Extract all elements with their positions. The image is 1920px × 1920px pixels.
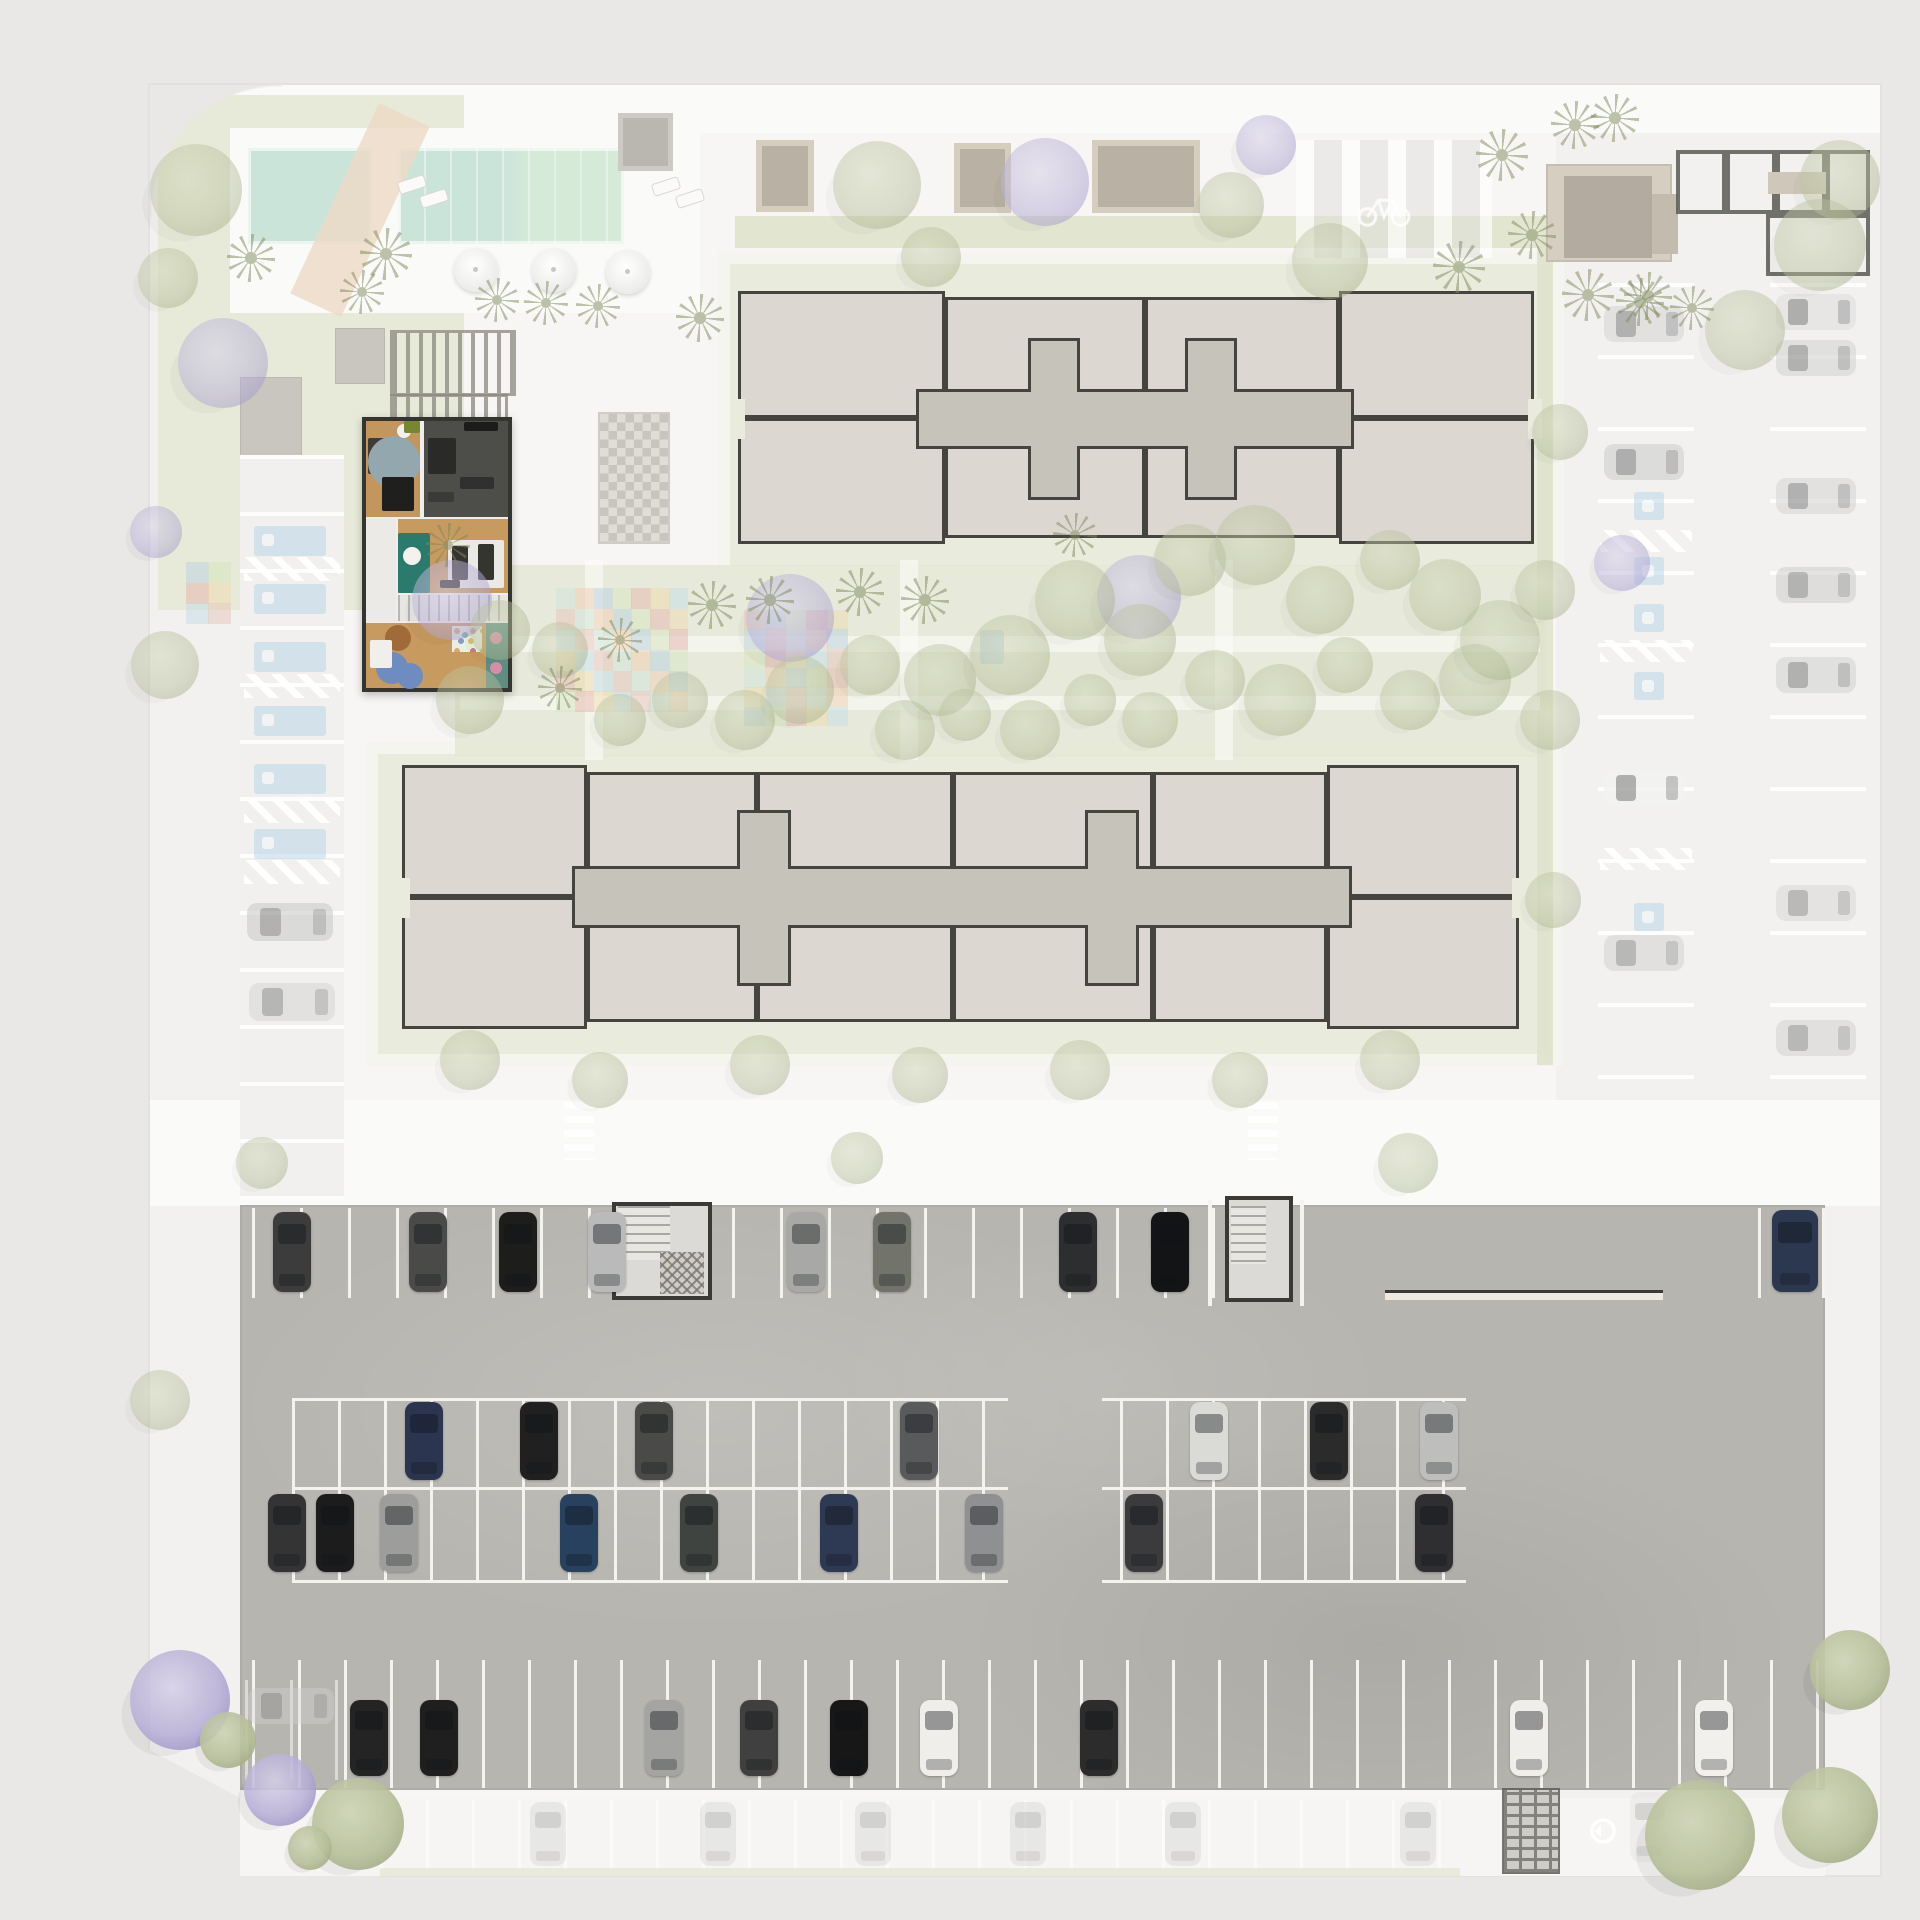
garage-stall-line [1310, 1660, 1313, 1788]
green-wall [404, 421, 420, 433]
garage-low-wall [1385, 1290, 1663, 1300]
parking-stall-line [240, 968, 344, 972]
core-side-wall [1208, 1200, 1212, 1306]
tree [244, 1754, 316, 1826]
garage-car [588, 1212, 626, 1292]
garage-stall-line [1120, 1398, 1123, 1582]
playground-tile [827, 707, 848, 727]
tree [1317, 637, 1373, 693]
garage-car [1772, 1210, 1818, 1292]
gatehouse-side [1652, 194, 1678, 254]
tree [715, 690, 775, 750]
building-1-corridor-floor [936, 392, 1334, 446]
crosswalk [564, 1102, 594, 1160]
crosswalk [1248, 1102, 1278, 1160]
faded-car [248, 1688, 334, 1724]
playground-tile [613, 671, 632, 692]
bicycle-icon [1356, 192, 1412, 228]
tree [1594, 535, 1650, 591]
garage-stall-line [924, 1208, 927, 1298]
garage-car [1125, 1494, 1163, 1572]
tree [1525, 872, 1581, 928]
parking-stall-line [1770, 427, 1866, 431]
no-parking-hatch [1600, 640, 1692, 662]
garage-row-line [292, 1487, 1008, 1490]
tree [1520, 690, 1580, 750]
tree [970, 615, 1050, 695]
tree [1515, 560, 1575, 620]
tree [236, 1137, 288, 1189]
rooftop-planter [1092, 140, 1200, 213]
parked-car [1776, 478, 1856, 514]
garage-car [380, 1494, 418, 1572]
garage-stall-line [1402, 1660, 1405, 1788]
parked-car [1604, 935, 1684, 971]
garage-stall-line [732, 1208, 735, 1298]
tree [1035, 560, 1115, 640]
palm-tree [598, 618, 642, 662]
garage-stall-line [1770, 1660, 1773, 1788]
outdoor-stall-line [518, 1800, 521, 1870]
parking-stall-line [1598, 1003, 1694, 1007]
tree [1705, 290, 1785, 370]
garage-stall-line [396, 1208, 399, 1298]
garage-stall-line [1264, 1660, 1267, 1788]
parking-stall-line [1598, 355, 1694, 359]
garage-stall-line [1258, 1398, 1261, 1582]
parking-stall-line [1598, 427, 1694, 431]
garage-stall-line [1586, 1660, 1589, 1788]
outdoor-stall-line [932, 1800, 935, 1870]
parking-stall-line [240, 1025, 344, 1029]
garage-stall-line [804, 1660, 807, 1788]
garage-stall-line [1494, 1660, 1497, 1788]
faded-car [1400, 1802, 1436, 1866]
garage-stall-line [1356, 1660, 1359, 1788]
outdoor-stall-line [335, 1680, 338, 1780]
parking-stall-line [240, 455, 344, 459]
garage-row-line [1102, 1580, 1466, 1583]
accessible-stall [1634, 604, 1664, 632]
street-hedge [380, 1868, 1460, 1877]
garage-car [820, 1494, 858, 1572]
garage-stall-line [482, 1660, 485, 1788]
accessible-stall [1634, 492, 1664, 520]
garage-car [1190, 1402, 1228, 1480]
garage-stall-line [712, 1660, 715, 1788]
tree [1104, 604, 1176, 676]
parking-stall-line [1598, 715, 1694, 719]
garage-stall-line [620, 1660, 623, 1788]
playground-tile [594, 588, 613, 609]
palm-tree [1670, 286, 1714, 330]
garage-car [420, 1700, 458, 1776]
garage-stall-line [972, 1208, 975, 1298]
playground-tile [575, 588, 594, 609]
garage-stall-line [614, 1398, 617, 1582]
outdoor-stall-line [472, 1800, 475, 1870]
outdoor-stall-line [840, 1800, 843, 1870]
rooftop-planter [756, 140, 814, 212]
no-parking-hatch [1600, 848, 1692, 870]
parked-car [1776, 657, 1856, 693]
outdoor-stall-line [656, 1800, 659, 1870]
building-2-unit [402, 897, 587, 1029]
playground-tile [208, 562, 231, 583]
building-2-core-floor [740, 813, 788, 983]
faded-car [855, 1802, 891, 1866]
accessible-stall [1634, 903, 1664, 931]
tree [1292, 223, 1368, 299]
garage-stall-line [1172, 1660, 1175, 1788]
outdoor-stall-line [1254, 1800, 1257, 1870]
building-1-unit [738, 291, 945, 418]
wall-bar [464, 422, 498, 431]
pool-umbrella [606, 250, 650, 294]
tree [901, 227, 961, 287]
garage-stall-line [752, 1398, 755, 1582]
garage-car [316, 1494, 354, 1572]
garage-stall-line [890, 1398, 893, 1582]
garage-car [1695, 1700, 1733, 1776]
garage-stall-line [1304, 1398, 1307, 1582]
tree [1360, 1030, 1420, 1090]
palm-tree [1053, 513, 1097, 557]
tree [730, 1035, 790, 1095]
tree [1645, 1780, 1755, 1890]
garage-car [520, 1402, 558, 1480]
outdoor-stall-line [1438, 1800, 1441, 1870]
playground-tile [186, 603, 209, 624]
outdoor-stall-line [610, 1800, 613, 1870]
garage-stall-line [574, 1660, 577, 1788]
building-1-unit [1339, 418, 1534, 544]
parking-stall-line [240, 740, 344, 744]
garage-stall-line [1126, 1660, 1129, 1788]
tree [831, 1132, 883, 1184]
palm-tree [227, 234, 275, 282]
garage-stall-line [780, 1208, 783, 1298]
garage-stall-line [476, 1398, 479, 1582]
garage-car [645, 1700, 683, 1776]
garage-row-line [1102, 1487, 1466, 1490]
garage-car [787, 1212, 825, 1292]
garage-stall-line [344, 1660, 347, 1788]
parked-car [1776, 885, 1856, 921]
garage-car [635, 1402, 673, 1480]
faded-car [1165, 1802, 1201, 1866]
palm-tree [340, 270, 384, 314]
playground-tile [575, 609, 594, 630]
garage-stall-line [1350, 1398, 1353, 1582]
parking-stall-line [240, 512, 344, 516]
playground-tile [208, 603, 231, 624]
elevator [660, 1252, 704, 1294]
core-side-wall [1300, 1200, 1304, 1306]
building-1-notch [731, 399, 745, 439]
tree [130, 506, 182, 558]
garage-stall-line [1212, 1208, 1215, 1298]
palm-tree [524, 281, 568, 325]
garage-row-line [292, 1580, 1008, 1583]
garage-stall-line [528, 1660, 531, 1788]
tree [150, 144, 242, 236]
garage-car [409, 1212, 447, 1292]
tree [178, 318, 268, 408]
palm-tree [836, 568, 884, 616]
outdoor-stall-line [1070, 1800, 1073, 1870]
no-parking-hatch [244, 799, 340, 823]
garage-stall-line [540, 1208, 543, 1298]
outdoor-stall-line [1346, 1800, 1349, 1870]
building-2-notch [1512, 878, 1526, 918]
garage-stall-line [1218, 1660, 1221, 1788]
parking-stall-line [1770, 1075, 1866, 1079]
parked-car [1776, 567, 1856, 603]
outdoor-stall-line [426, 1800, 429, 1870]
outdoor-stall-line [978, 1800, 981, 1870]
tree [939, 689, 991, 741]
tree [833, 141, 921, 229]
tree [1532, 404, 1588, 460]
parking-stall-line [240, 626, 344, 630]
outdoor-stall-line [748, 1800, 751, 1870]
tree [1198, 172, 1264, 238]
building-1-core-floor [1188, 341, 1234, 497]
playground-tile [669, 629, 688, 650]
pouf-2 [490, 662, 502, 674]
palm-tree [901, 576, 949, 624]
tree [1212, 1052, 1268, 1108]
tree [594, 694, 646, 746]
tree [766, 656, 834, 724]
palm-tree [676, 294, 724, 342]
garage-stall-line [1166, 1398, 1169, 1582]
tree [436, 666, 504, 734]
garage-car [350, 1700, 388, 1776]
garage-car [680, 1494, 718, 1572]
tree [1774, 199, 1866, 291]
building-2-corridor-floor [592, 869, 1332, 925]
playground-tile [613, 588, 632, 609]
accessible-stall [1634, 672, 1664, 700]
garage-row-line [292, 1398, 1008, 1401]
gym-mat [460, 477, 494, 489]
garage-car [1420, 1402, 1458, 1480]
parking-stall-line [1770, 859, 1866, 863]
residential-site-plan [0, 0, 1920, 1920]
faded-car [1010, 1802, 1046, 1866]
drainage-grate [1502, 1788, 1560, 1874]
squat-rack [428, 438, 456, 474]
outdoor-stall-line [1392, 1800, 1395, 1870]
palm-tree [576, 284, 620, 328]
play-mat [370, 640, 392, 668]
playground-tile [631, 588, 650, 609]
tree [440, 1030, 500, 1090]
tree [840, 635, 900, 695]
tree [1380, 670, 1440, 730]
tree [1378, 1133, 1438, 1193]
garage-car [273, 1212, 311, 1292]
garage-stall-line [1758, 1208, 1761, 1298]
garage-car [1080, 1700, 1118, 1776]
faded-car [700, 1802, 736, 1866]
parking-stall-line [240, 1196, 344, 1200]
parked-car [1604, 444, 1684, 480]
tree [138, 248, 198, 308]
building-1-unit [1339, 291, 1534, 418]
parking-stall-line [1770, 787, 1866, 791]
accessible-stall [254, 526, 326, 556]
garage-stall-line [1396, 1398, 1399, 1582]
garage-row-line [1102, 1398, 1466, 1401]
garage-stall-line [1448, 1660, 1451, 1788]
garage-stall-line [252, 1208, 255, 1298]
garage-stall-line [798, 1398, 801, 1582]
rooftop-planter [618, 113, 673, 171]
palm-tree [1476, 129, 1528, 181]
tree [1001, 138, 1089, 226]
garage-car [1310, 1402, 1348, 1480]
tree [1215, 505, 1295, 585]
playground-tile [669, 588, 688, 609]
palm-tree [1433, 241, 1485, 293]
accessible-stall [254, 829, 326, 859]
playground-tile [669, 609, 688, 630]
palm-tree [426, 523, 470, 567]
garage-car [920, 1700, 958, 1776]
garage-stall-line [1034, 1660, 1037, 1788]
garage-car [900, 1402, 938, 1480]
kids-rug-b [397, 663, 423, 689]
garage-car [1151, 1212, 1189, 1292]
garage-stall-line [1632, 1660, 1635, 1788]
garage-stall-line [492, 1208, 495, 1298]
parked-car [1776, 340, 1856, 376]
accessible-stall [254, 642, 326, 672]
garage-car [1510, 1700, 1548, 1776]
garage-car [740, 1700, 778, 1776]
turnaround-arrow-icon [1586, 1814, 1620, 1848]
building-2-notch [396, 878, 410, 918]
parked-car [247, 903, 333, 941]
gatehouse-roof [1564, 176, 1652, 258]
tree [1000, 700, 1060, 760]
tree [1050, 1040, 1110, 1100]
concrete-pad [335, 328, 385, 384]
playground-tile [650, 609, 669, 630]
tree [1810, 1630, 1890, 1710]
parking-stall-line [1770, 1003, 1866, 1007]
building-1-core-floor [1031, 341, 1077, 497]
tree [288, 1826, 332, 1870]
accessible-stall [254, 706, 326, 736]
palm-tree [1562, 269, 1614, 321]
garage-car [268, 1494, 306, 1572]
playground-tile [650, 629, 669, 650]
playground-tile [744, 668, 765, 688]
tree [1122, 692, 1178, 748]
palm-tree [1624, 272, 1672, 320]
tree [131, 631, 199, 699]
playground-tile [556, 588, 575, 609]
palm-tree [538, 666, 582, 710]
garage-stall-line [828, 1208, 831, 1298]
parked-car [249, 983, 335, 1021]
tree [200, 1712, 256, 1768]
parked-car [1604, 770, 1684, 806]
garage-car [405, 1402, 443, 1480]
playground-tile [186, 562, 209, 583]
garage-stall-line [1822, 1208, 1825, 1298]
pergola [390, 330, 516, 396]
building-2-unit [1327, 897, 1519, 1029]
tree [892, 1047, 948, 1103]
road [150, 1100, 1880, 1206]
building-2-core-floor [1088, 813, 1136, 983]
entrance-pergola-frame [1676, 150, 1726, 214]
playground-tile [208, 583, 231, 604]
piano [382, 477, 414, 511]
building-1-unit [738, 418, 945, 544]
garage-car [499, 1212, 537, 1292]
garage-stall-line [390, 1660, 393, 1788]
tree [1236, 115, 1296, 175]
tree [652, 672, 708, 728]
palm-tree [1508, 211, 1556, 259]
counter-ball [403, 547, 421, 565]
tree [1064, 674, 1116, 726]
no-parking-hatch [244, 674, 340, 698]
parked-car [1776, 294, 1856, 330]
palm-tree [688, 581, 736, 629]
palm-tree [1591, 94, 1639, 142]
no-parking-hatch [244, 860, 340, 884]
garage-car [965, 1494, 1003, 1572]
parking-stall-line [240, 1082, 344, 1086]
playground-tile [631, 671, 650, 692]
parking-stall-line [1770, 715, 1866, 719]
accessible-stall [254, 764, 326, 794]
playground-tile [594, 671, 613, 692]
garage-stall-line [988, 1660, 991, 1788]
tree [470, 600, 530, 660]
playground-tile [650, 650, 669, 671]
outdoor-stall-line [794, 1800, 797, 1870]
tree [1185, 650, 1245, 710]
outdoor-stall-line [1300, 1800, 1303, 1870]
stair-core-2-stairs [1231, 1206, 1266, 1264]
garage-stall-line [348, 1208, 351, 1298]
gym-mat-2 [428, 492, 454, 502]
outdoor-stall-line [1208, 1800, 1211, 1870]
palm-tree [746, 576, 794, 624]
palm-tree [475, 278, 519, 322]
garage-stall-line [1020, 1208, 1023, 1298]
parking-stall-line [1770, 643, 1866, 647]
garage-stall-line [896, 1660, 899, 1788]
parking-stall-line [1770, 931, 1866, 935]
playground-tile [650, 588, 669, 609]
garage-stall-line [1678, 1660, 1681, 1788]
garage-car [873, 1212, 911, 1292]
parked-car [1776, 1020, 1856, 1056]
building-2-unit [402, 765, 587, 897]
parking-stall-line [1598, 1075, 1694, 1079]
tree [1782, 1767, 1878, 1863]
garage-stall-line [1116, 1208, 1119, 1298]
